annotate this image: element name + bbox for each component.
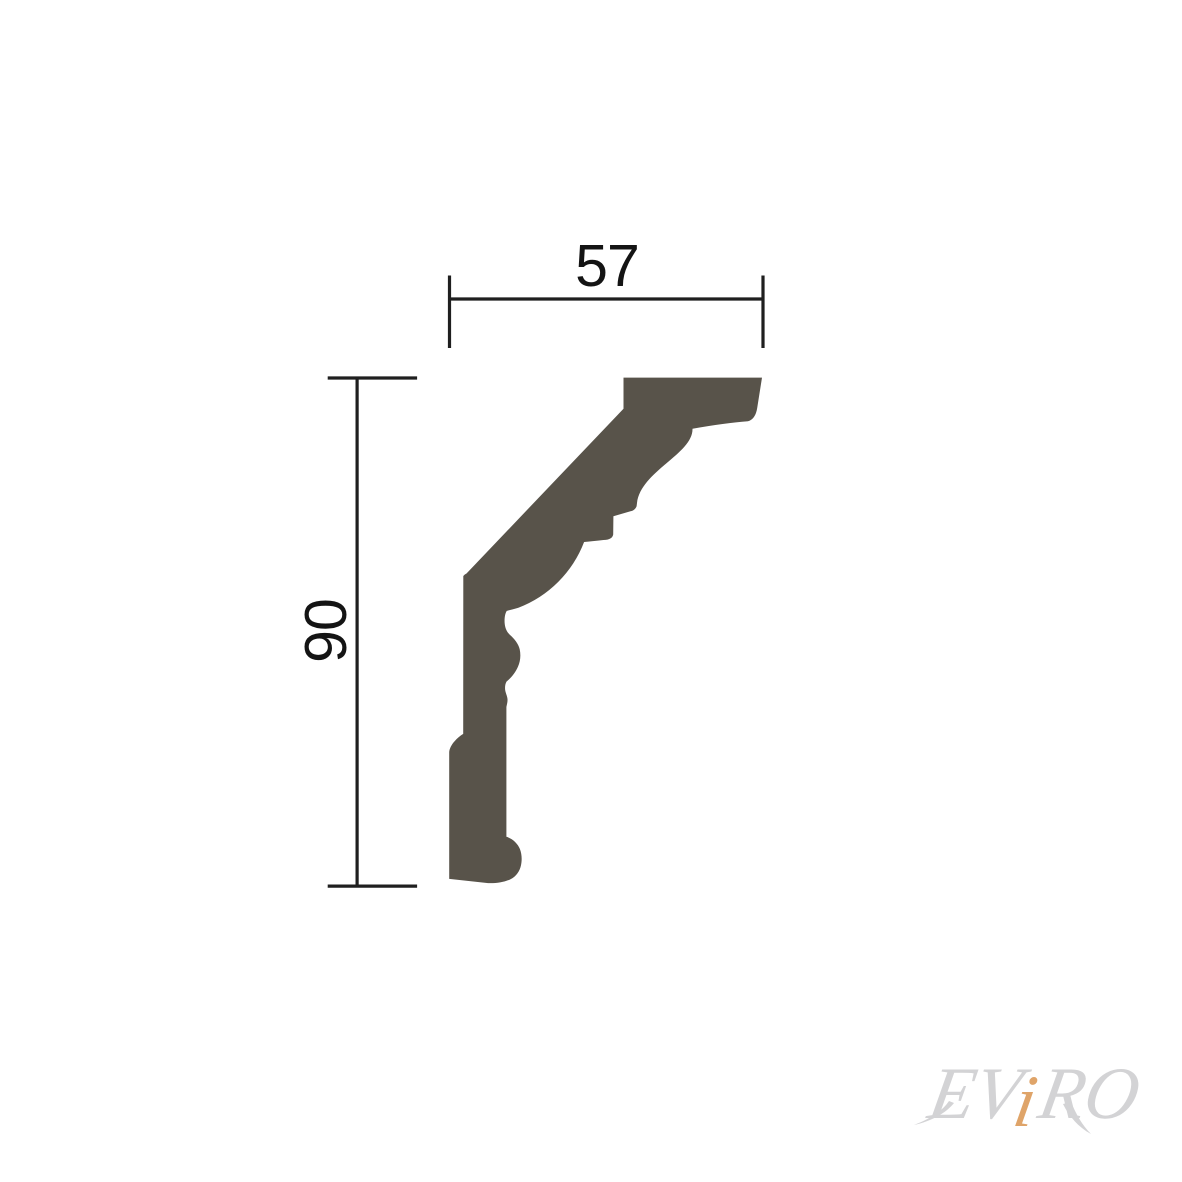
svg-text:EViRO: EViRO: [921, 1053, 1146, 1142]
svg-text:57: 57: [575, 233, 639, 299]
svg-text:90: 90: [293, 599, 359, 663]
